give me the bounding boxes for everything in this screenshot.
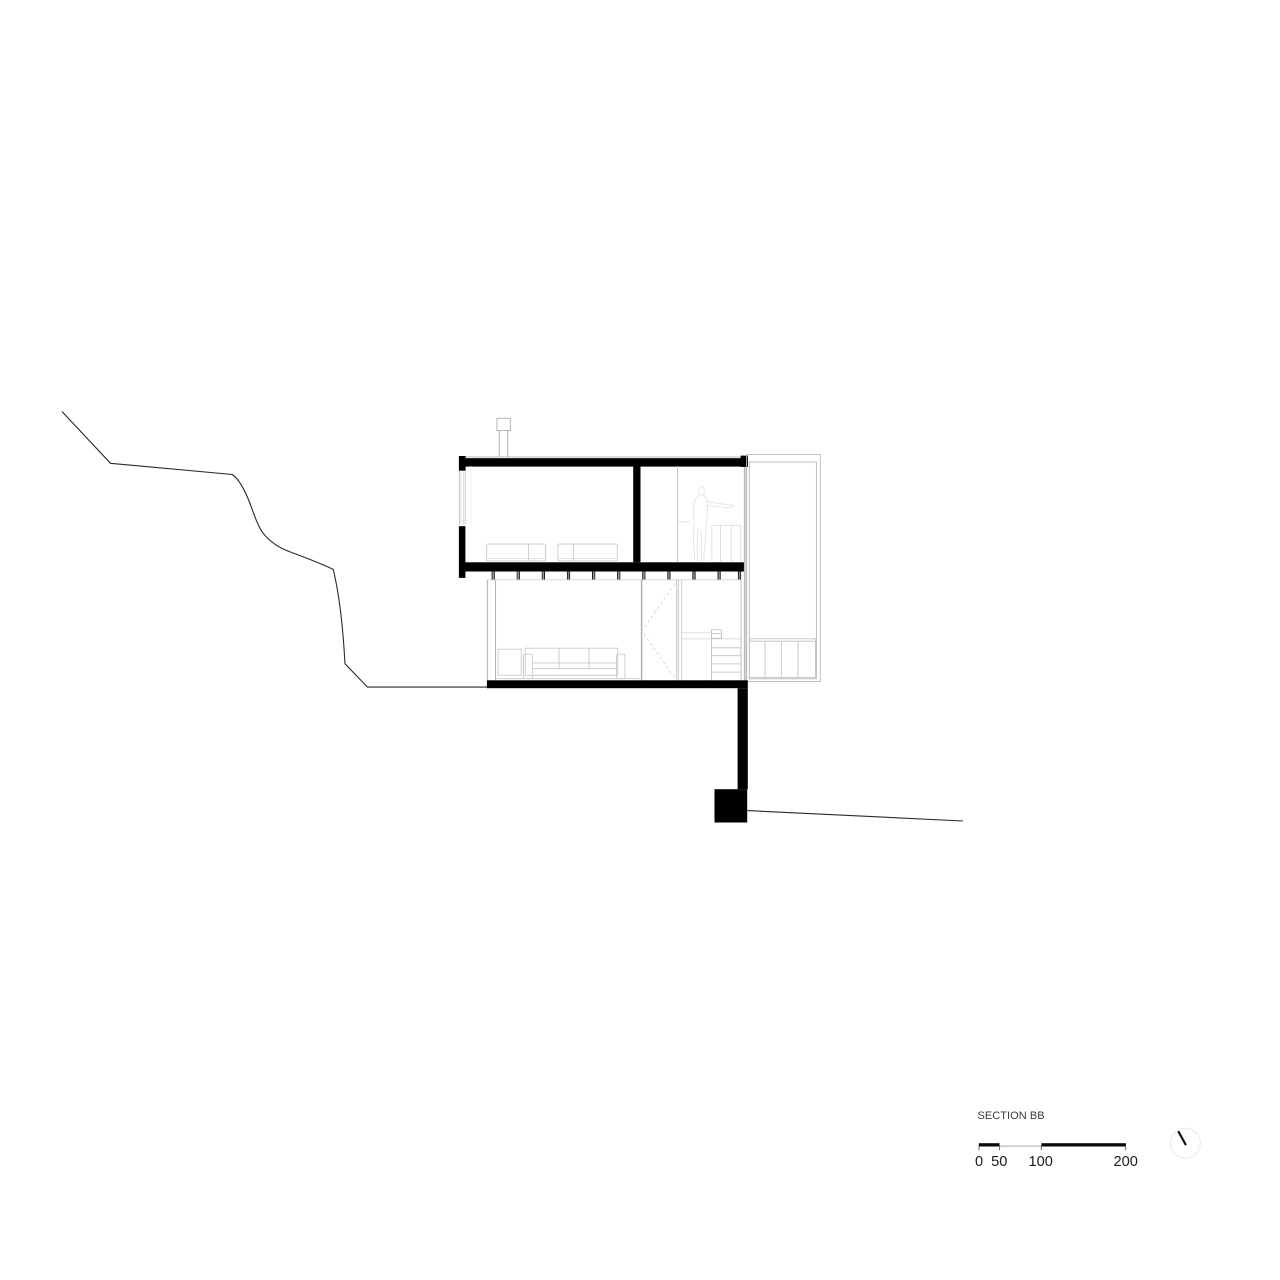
svg-text:50: 50	[991, 1154, 1007, 1170]
svg-text:100: 100	[1029, 1154, 1053, 1170]
svg-text:SECTION BB: SECTION BB	[978, 1110, 1045, 1122]
svg-text:0: 0	[975, 1154, 983, 1170]
svg-text:200: 200	[1114, 1154, 1138, 1170]
